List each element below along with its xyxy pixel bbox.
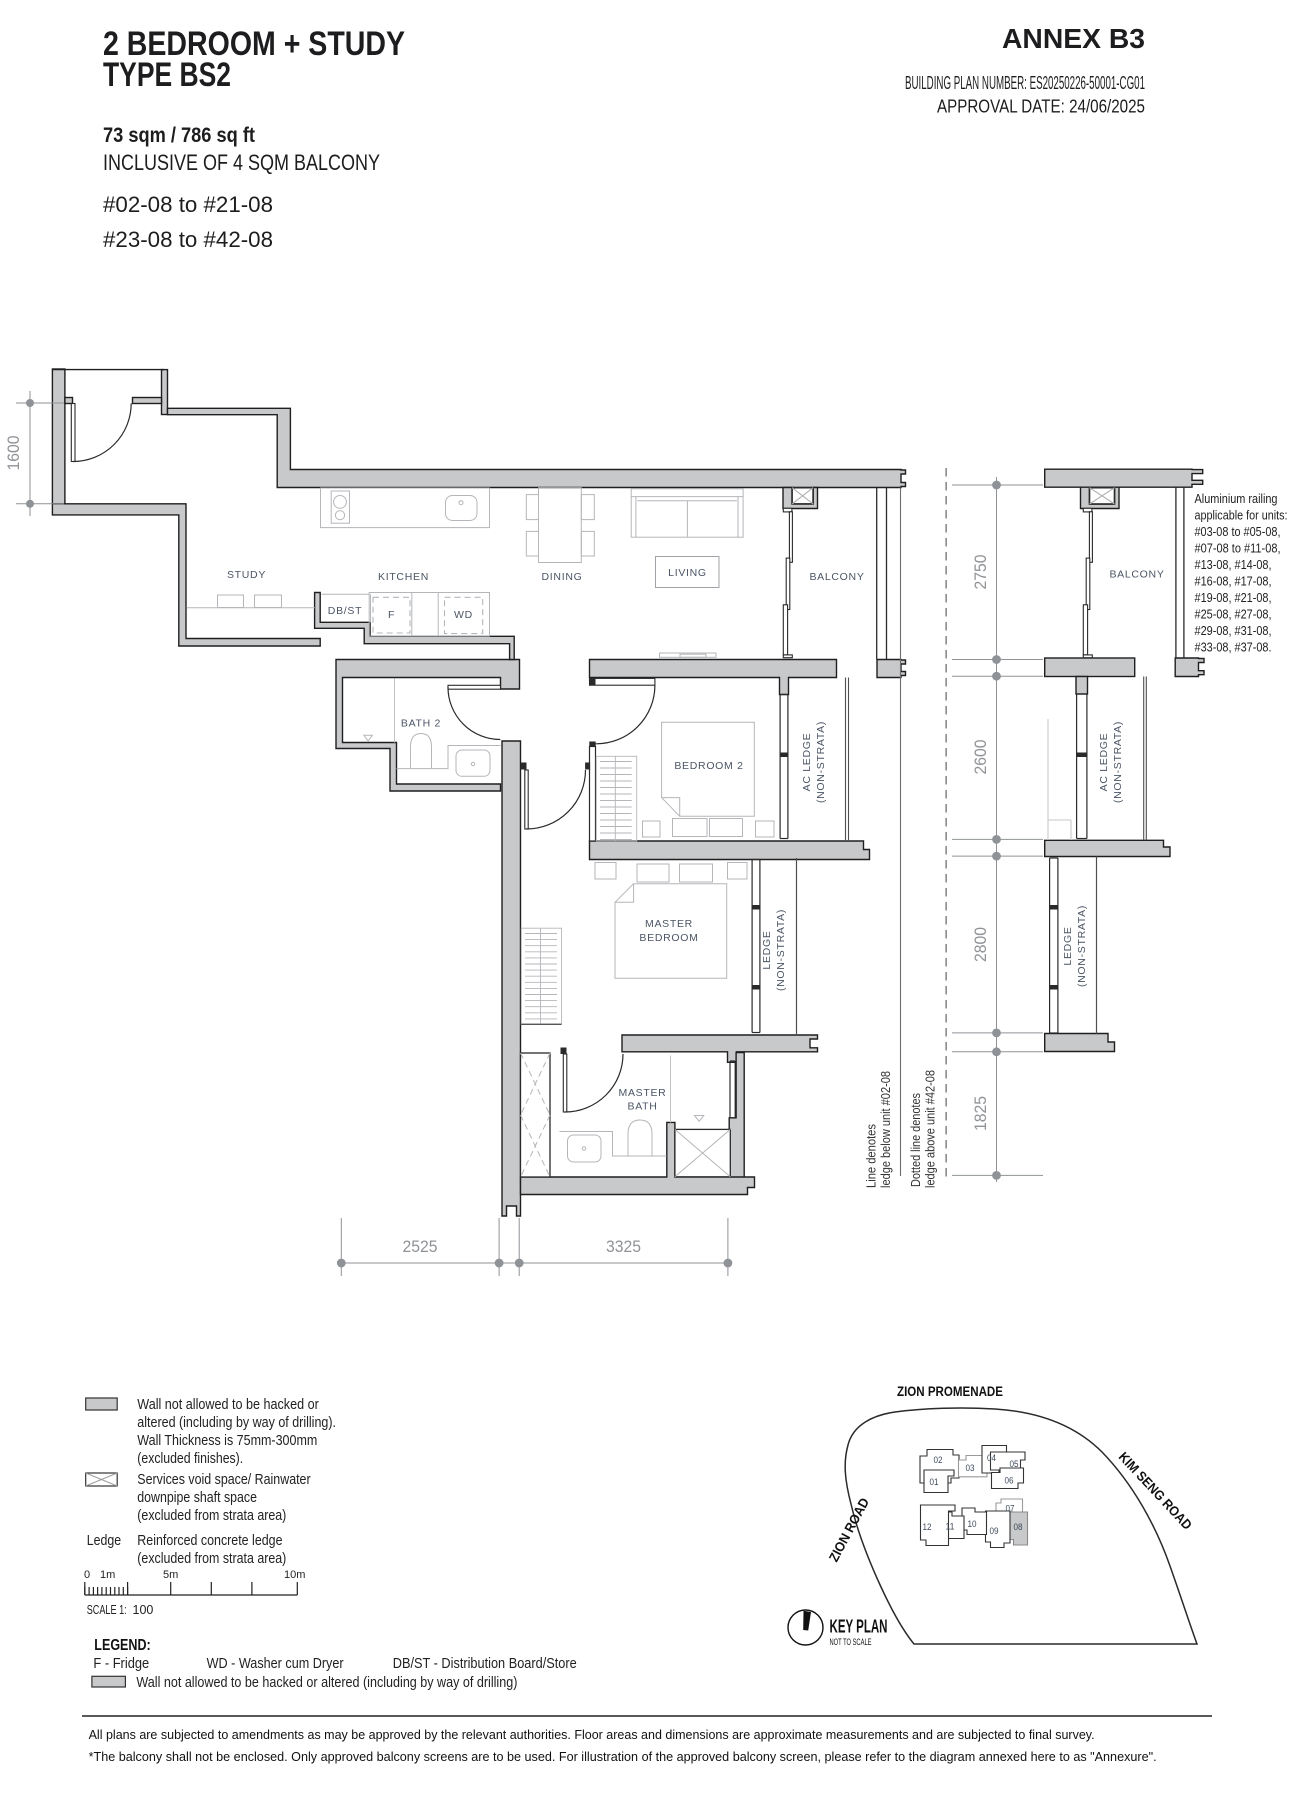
svg-text:F - Fridge: F - Fridge — [93, 1656, 149, 1672]
svg-text:LEDGE: LEDGE — [761, 930, 773, 969]
svg-text:BALCONY: BALCONY — [1109, 569, 1164, 581]
svg-text:ledge below unit #02-08: ledge below unit #02-08 — [879, 1071, 893, 1188]
svg-text:5m: 5m — [163, 1569, 178, 1581]
svg-text:DB/ST - Distribution Board/Sto: DB/ST - Distribution Board/Store — [393, 1656, 577, 1672]
svg-text:ledge above unit #42-08: ledge above unit #42-08 — [923, 1070, 937, 1188]
svg-text:1m: 1m — [100, 1569, 115, 1581]
svg-text:INCLUSIVE OF 4 SQM BALCONY: INCLUSIVE OF 4 SQM BALCONY — [103, 150, 380, 175]
svg-text:2525: 2525 — [403, 1237, 438, 1256]
svg-text:73 sqm / 786 sq ft: 73 sqm / 786 sq ft — [103, 123, 255, 147]
svg-text:WD: WD — [454, 609, 473, 621]
svg-text:NOT TO SCALE: NOT TO SCALE — [830, 1637, 872, 1648]
svg-text:MASTER: MASTER — [645, 918, 693, 930]
svg-text:2600: 2600 — [971, 740, 990, 775]
svg-text:(excluded from strata area): (excluded from strata area) — [137, 1508, 286, 1524]
svg-text:(NON-STRATA): (NON-STRATA) — [775, 909, 787, 991]
svg-text:(excluded finishes).: (excluded finishes). — [137, 1451, 243, 1467]
svg-text:12: 12 — [923, 1522, 932, 1532]
svg-text:WD - Washer cum Dryer: WD - Washer cum Dryer — [207, 1656, 344, 1672]
svg-text:09: 09 — [990, 1526, 999, 1536]
svg-text:KITCHEN: KITCHEN — [378, 571, 429, 583]
svg-text:02: 02 — [934, 1455, 943, 1465]
svg-text:Wall not allowed to be hacked: Wall not allowed to be hacked or altered… — [136, 1675, 517, 1691]
svg-text:03: 03 — [966, 1463, 975, 1473]
svg-text:(excluded from strata area): (excluded from strata area) — [137, 1551, 286, 1567]
svg-text:downpipe shaft space: downpipe shaft space — [137, 1490, 257, 1506]
svg-text:STUDY: STUDY — [227, 569, 266, 581]
svg-text:#13-08, #14-08,: #13-08, #14-08, — [1195, 557, 1272, 572]
svg-text:0: 0 — [84, 1569, 90, 1581]
svg-text:AC LEDGE: AC LEDGE — [1098, 733, 1110, 792]
svg-text:Dotted line denotes: Dotted line denotes — [909, 1093, 923, 1187]
svg-text:All plans are subjected to ame: All plans are subjected to amendments as… — [89, 1728, 1095, 1742]
svg-text:2750: 2750 — [971, 555, 990, 590]
svg-text:#03-08 to #05-08,: #03-08 to #05-08, — [1195, 524, 1281, 539]
svg-text:Wall Thickness is 75mm-300mm: Wall Thickness is 75mm-300mm — [137, 1433, 317, 1449]
svg-text:BUILDING PLAN NUMBER: ES202502: BUILDING PLAN NUMBER: ES20250226-50001-C… — [905, 72, 1145, 93]
svg-text:LIVING: LIVING — [668, 567, 707, 579]
svg-text:ANNEX B3: ANNEX B3 — [1002, 23, 1145, 54]
svg-text:2800: 2800 — [971, 927, 990, 962]
svg-text:LEGEND:: LEGEND: — [94, 1637, 150, 1654]
svg-text:APPROVAL DATE: 24/06/2025: APPROVAL DATE: 24/06/2025 — [937, 96, 1145, 117]
svg-text:BATH: BATH — [627, 1101, 657, 1113]
svg-text:3325: 3325 — [606, 1237, 641, 1256]
svg-text:#25-08, #27-08,: #25-08, #27-08, — [1195, 607, 1272, 622]
svg-text:11: 11 — [946, 1522, 955, 1532]
svg-text:BALCONY: BALCONY — [809, 571, 864, 583]
svg-text:KEY PLAN: KEY PLAN — [830, 1617, 888, 1637]
svg-text:1600: 1600 — [4, 436, 23, 471]
svg-text:Services void space/ Rainwater: Services void space/ Rainwater — [137, 1472, 310, 1488]
svg-text:BEDROOM 2: BEDROOM 2 — [674, 760, 743, 772]
svg-text:DINING: DINING — [542, 571, 583, 583]
svg-text:*The balcony shall not be encl: *The balcony shall not be enclosed. Only… — [89, 1750, 1157, 1764]
svg-text:07: 07 — [1006, 1504, 1015, 1514]
svg-text:#23-08 to #42-08: #23-08 to #42-08 — [103, 227, 273, 252]
svg-text:altered (including by way of d: altered (including by way of drilling). — [137, 1415, 336, 1431]
svg-text:#07-08 to #11-08,: #07-08 to #11-08, — [1195, 541, 1281, 556]
svg-text:Reinforced concrete ledge: Reinforced concrete ledge — [137, 1533, 282, 1549]
svg-text:01: 01 — [930, 1477, 939, 1487]
svg-text:Aluminium railing: Aluminium railing — [1195, 491, 1278, 506]
svg-text:(NON-STRATA): (NON-STRATA) — [815, 721, 827, 803]
svg-text:08: 08 — [1014, 1522, 1023, 1532]
svg-text:AC LEDGE: AC LEDGE — [801, 733, 813, 792]
svg-text:F: F — [388, 609, 395, 621]
svg-text:#16-08, #17-08,: #16-08, #17-08, — [1195, 574, 1272, 589]
svg-text:MASTER: MASTER — [619, 1087, 667, 1099]
svg-text:1825: 1825 — [971, 1096, 990, 1131]
svg-text:05: 05 — [1010, 1459, 1019, 1469]
svg-text:ZION PROMENADE: ZION PROMENADE — [897, 1384, 1003, 1399]
svg-text:Ledge: Ledge — [87, 1533, 121, 1549]
svg-text:ZION ROAD: ZION ROAD — [826, 1495, 872, 1564]
svg-text:TYPE BS2: TYPE BS2 — [103, 56, 231, 94]
svg-text:(NON-STRATA): (NON-STRATA) — [1112, 721, 1124, 803]
svg-text:04: 04 — [987, 1453, 996, 1463]
svg-text:BEDROOM: BEDROOM — [639, 932, 698, 944]
svg-text:DB/ST: DB/ST — [328, 605, 362, 617]
svg-text:SCALE 1:: SCALE 1: — [87, 1603, 127, 1617]
svg-text:06: 06 — [1005, 1476, 1014, 1486]
svg-text:LEDGE: LEDGE — [1062, 926, 1074, 965]
svg-text:KIM SENG ROAD: KIM SENG ROAD — [1116, 1449, 1195, 1533]
svg-text:100: 100 — [133, 1603, 154, 1617]
svg-text:#33-08, #37-08.: #33-08, #37-08. — [1195, 640, 1272, 655]
svg-text:BATH 2: BATH 2 — [401, 718, 441, 730]
svg-text:(NON-STRATA): (NON-STRATA) — [1076, 905, 1088, 987]
svg-text:#19-08, #21-08,: #19-08, #21-08, — [1195, 590, 1272, 605]
svg-text:Line denotes: Line denotes — [864, 1124, 878, 1188]
svg-text:Wall not allowed to be hacked: Wall not allowed to be hacked or — [137, 1397, 319, 1413]
svg-text:#29-08, #31-08,: #29-08, #31-08, — [1195, 623, 1272, 638]
svg-text:10: 10 — [968, 1519, 977, 1529]
svg-text:#02-08 to #21-08: #02-08 to #21-08 — [103, 192, 273, 217]
svg-text:applicable for units:: applicable for units: — [1195, 508, 1288, 523]
svg-text:10m: 10m — [284, 1569, 305, 1581]
